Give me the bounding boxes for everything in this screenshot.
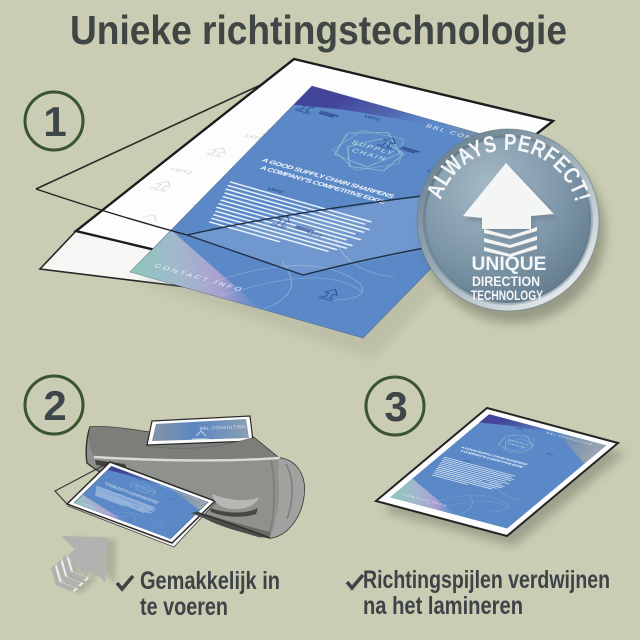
svg-text:TECHNOLOGY: TECHNOLOGY (471, 288, 543, 303)
svg-text:DIRECTION: DIRECTION (472, 273, 540, 289)
svg-text:Unieke richtingstechnologie: Unieke richtingstechnologie (70, 7, 567, 53)
svg-text:Gemakkelijk in: Gemakkelijk in (140, 567, 280, 595)
svg-text:te voeren: te voeren (140, 593, 228, 621)
svg-text:UNIQUE: UNIQUE (472, 254, 547, 275)
svg-text:3: 3 (384, 383, 407, 430)
svg-text:Richtingspijlen verdwijnen: Richtingspijlen verdwijnen (363, 566, 610, 594)
svg-text:2: 2 (43, 382, 66, 429)
svg-text:na het lamineren: na het lamineren (363, 592, 523, 620)
svg-text:1: 1 (43, 98, 66, 145)
